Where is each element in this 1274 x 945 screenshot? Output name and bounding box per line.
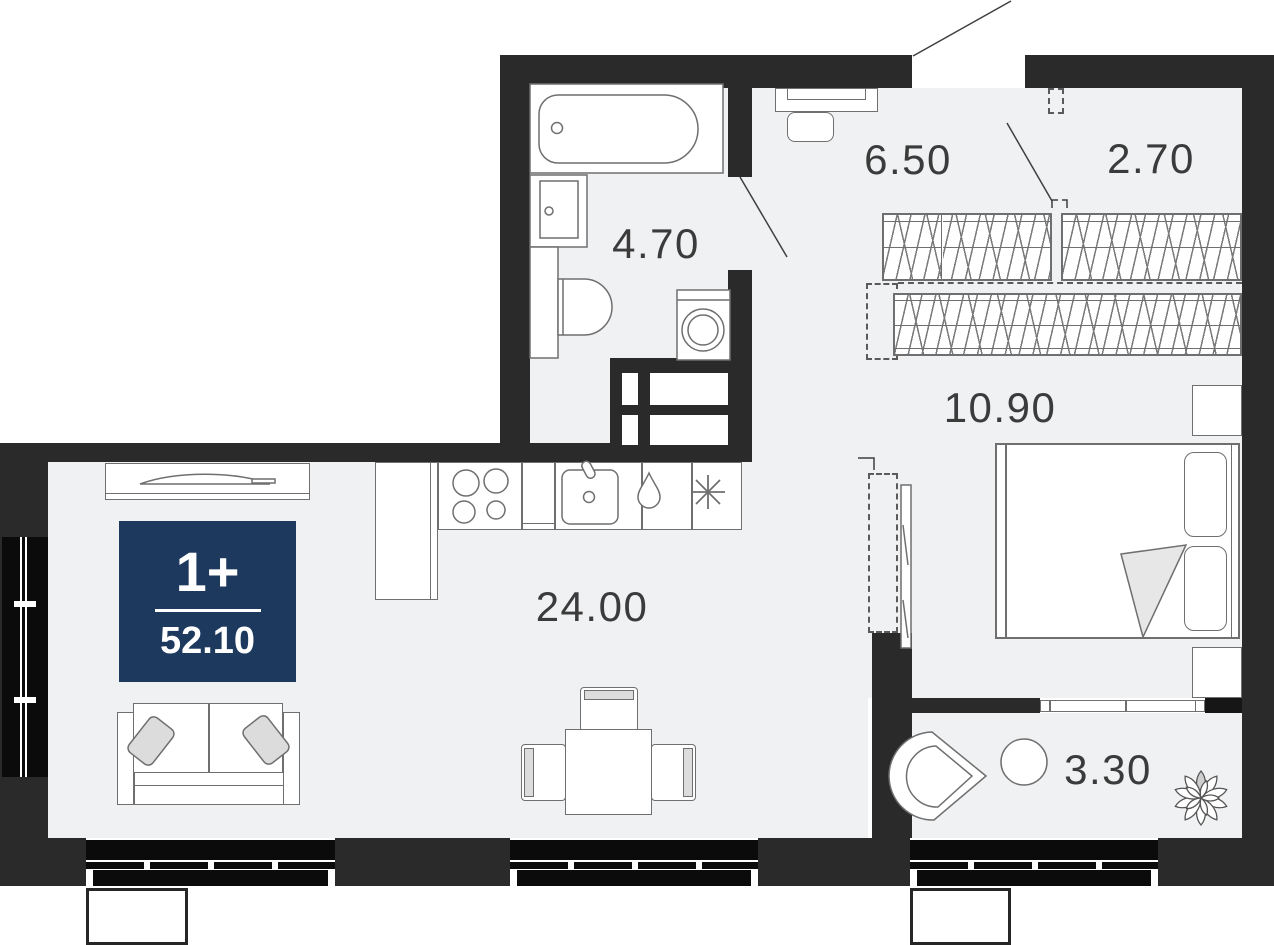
bed-headboard-line xyxy=(1231,445,1233,637)
window-bottom-left-inner xyxy=(93,870,328,886)
room-label-bathroom: 4.70 xyxy=(612,220,700,268)
floor-plan: 1+ 52.10 xyxy=(0,0,1274,945)
chair-right xyxy=(651,744,696,801)
window-bottom-left-outer xyxy=(86,840,335,860)
wall-bathroom-right-upper xyxy=(728,88,752,177)
unit-rooms-label: 1+ xyxy=(176,544,240,600)
counter-divider xyxy=(641,463,643,529)
floor-bathroom-door-opening xyxy=(730,177,752,270)
window-bedroom-loggia xyxy=(1040,700,1205,712)
window-left-glazing-line xyxy=(20,537,22,777)
room-label-living-kitchen: 24.00 xyxy=(536,583,649,631)
counter-divider xyxy=(691,463,693,529)
wardrobe-shelf-line xyxy=(884,221,1050,222)
console-desk-inset xyxy=(787,88,866,100)
bed-footboard-line xyxy=(1005,445,1007,637)
wardrobe-dashed-line xyxy=(898,282,1242,284)
tv-console-line xyxy=(106,493,309,494)
balcony-rail-left xyxy=(86,888,188,945)
chair-backrest xyxy=(584,690,634,700)
wall-bottom-seg4 xyxy=(1158,838,1242,886)
window-bottom-right-mullions xyxy=(910,862,1158,869)
wall-bathroom-right-mid xyxy=(728,270,752,360)
bed-pillow xyxy=(1184,546,1227,631)
chair-top xyxy=(580,687,638,732)
wardrobe-row1-left xyxy=(882,213,1052,281)
wardrobe-rail-line xyxy=(895,325,1240,326)
room-label-wardrobe: 2.70 xyxy=(1107,135,1195,183)
wardrobe-shelf-line xyxy=(1063,221,1240,222)
wall-bedroom-bottom-right xyxy=(1205,698,1242,713)
window-bottom-mid-outer xyxy=(510,840,758,860)
dining-table xyxy=(565,729,652,815)
chair-left xyxy=(521,744,566,801)
opening-dashed-wardrobe-top xyxy=(1048,88,1064,114)
window-bottom-mid-inner xyxy=(517,870,751,886)
wall-top-right-of-entrance xyxy=(1025,55,1242,88)
shaft-cell xyxy=(622,415,638,445)
tv-console xyxy=(105,463,310,500)
room-label-corridor: 10.90 xyxy=(944,384,1057,432)
wall-bottom-seg1 xyxy=(0,838,86,886)
shaft-cell xyxy=(622,373,638,405)
unit-area-label: 52.10 xyxy=(160,622,255,660)
window-divider xyxy=(1049,701,1051,711)
window-bottom-left-mullions xyxy=(86,862,335,869)
stool xyxy=(787,112,834,142)
sofa-seat xyxy=(133,703,283,773)
unit-badge: 1+ 52.10 xyxy=(119,521,296,682)
room-label-loggia: 3.30 xyxy=(1064,746,1152,794)
wardrobe-shelf-line xyxy=(895,300,1240,301)
wardrobe-row1-right xyxy=(1061,213,1242,281)
badge-divider xyxy=(155,609,261,612)
console-desk xyxy=(775,88,878,112)
bed-pillow xyxy=(1184,452,1227,537)
nightstand-top xyxy=(1192,385,1242,436)
shaft-cell xyxy=(650,373,728,405)
wall-top-left-of-entrance xyxy=(500,55,912,88)
window-left-transom-gap xyxy=(14,601,36,607)
kitchen-tall-cabinet xyxy=(375,462,438,600)
window-divider xyxy=(1125,701,1127,711)
window-bottom-right-inner xyxy=(917,870,1151,886)
balcony-rail-right xyxy=(910,888,1011,945)
wardrobe-shelf-line xyxy=(895,348,1240,349)
chair-backrest xyxy=(524,748,534,797)
room-label-hall: 6.50 xyxy=(864,136,952,184)
counter-line xyxy=(523,523,556,524)
counter-divider xyxy=(554,463,556,529)
wall-bottom-seg2 xyxy=(335,838,510,886)
wall-bathroom-left xyxy=(500,55,530,462)
window-divider xyxy=(1195,701,1197,711)
entrance-door-swing xyxy=(913,1,1011,56)
wardrobe-divider xyxy=(941,215,943,279)
wall-bottom-seg3 xyxy=(758,838,910,886)
window-bottom-mid-mullions xyxy=(510,862,758,869)
kitchen-counter xyxy=(438,462,742,530)
counter-divider xyxy=(521,463,523,529)
sliding-door-pocket xyxy=(868,473,898,633)
window-left-glazing-line xyxy=(25,537,27,777)
duct-shaft xyxy=(610,358,752,462)
wall-bedroom-bottom xyxy=(902,698,1040,713)
wardrobe-row2 xyxy=(893,293,1242,356)
cabinet-line xyxy=(430,463,432,599)
shaft-cell xyxy=(650,415,728,445)
wardrobe-rail-line xyxy=(884,247,1050,248)
wall-right xyxy=(1242,55,1274,886)
wall-loggia-left xyxy=(872,633,912,838)
window-left-transom-gap xyxy=(14,697,36,703)
window-bottom-right-outer xyxy=(910,840,1158,860)
wardrobe-rail-line xyxy=(1063,247,1240,248)
chair-backrest xyxy=(683,748,693,797)
nightstand-bottom xyxy=(1192,647,1242,698)
sofa-back-line xyxy=(134,785,283,787)
sofa-seat-divider xyxy=(208,704,210,772)
